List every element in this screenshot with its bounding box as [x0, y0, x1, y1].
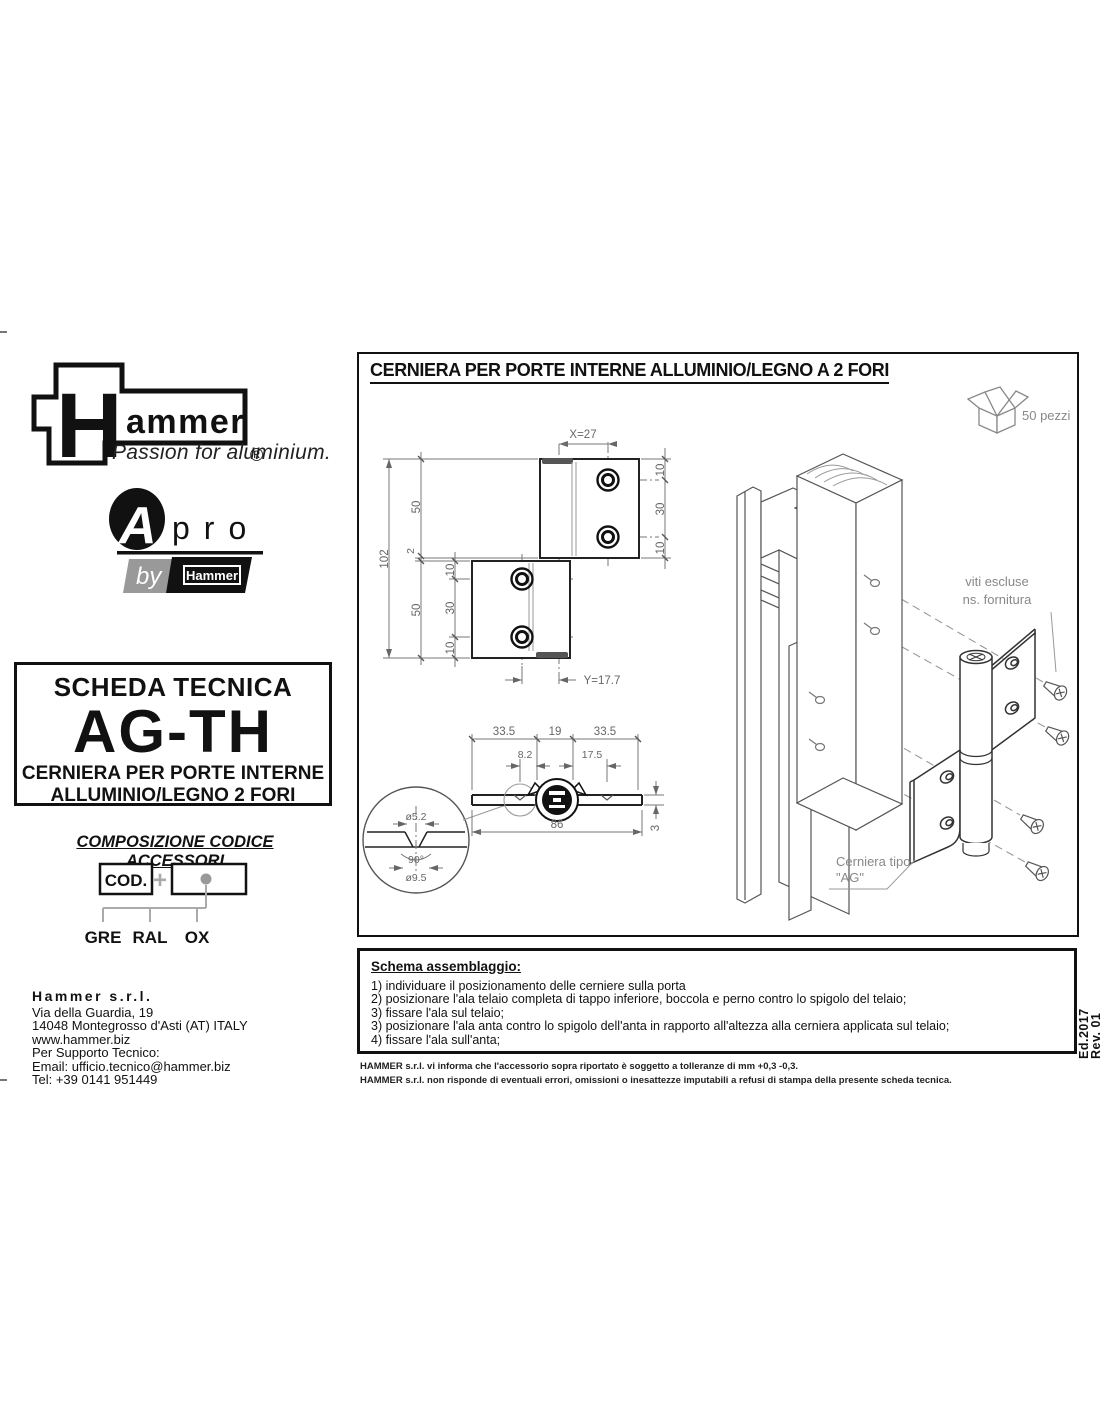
iso-view: viti escluse ns. fornitura Cerniera tipo… — [737, 454, 1071, 920]
dim-right-10a: 10 — [655, 464, 667, 477]
apro-pro: pro — [172, 510, 260, 546]
assembly-step: 1) individuare il posizionamento delle c… — [371, 980, 1074, 993]
screws-note-line1: viti escluse — [965, 574, 1029, 589]
company-street: Via della Guardia, 19 — [32, 1006, 248, 1020]
company-email: Email: ufficio.tecnico@hammer.biz — [32, 1060, 248, 1074]
dim-102: 102 — [379, 549, 391, 568]
screws-note-leader — [1051, 612, 1056, 672]
disclaimer-line2: HAMMER s.r.l. non risponde di eventuali … — [360, 1074, 952, 1088]
made-in-italy-badge — [528, 779, 586, 821]
dim-2-gap: 2 — [405, 548, 417, 554]
dim-50-lower: 50 — [411, 604, 423, 617]
company-address: Hammer s.r.l. Via della Guardia, 19 1404… — [32, 990, 248, 1087]
datasheet-page: H Hammer ammer ® Passion for aluminium. … — [0, 0, 1100, 1422]
assembly-step: 2) posizionare l'ala telaio completa di … — [371, 993, 1074, 1006]
product-code: AG-TH — [17, 703, 329, 760]
assembly-instructions-box: Schema assemblaggio: 1) individuare il p… — [357, 948, 1077, 1054]
assembly-step: 3) posizionare l'ala anta contro lo spig… — [371, 1020, 1074, 1033]
technical-drawings: 50 pezzi — [359, 354, 1077, 935]
dim-82: 8.2 — [518, 749, 533, 761]
detail-leader — [463, 805, 506, 820]
dim-86: 86 — [551, 819, 564, 831]
product-name-line1: CERNIERA PER PORTE INTERNE — [17, 763, 329, 785]
hinge-type-line1: Cerniera tipo — [836, 854, 910, 869]
finish-dot — [201, 874, 212, 885]
company-phone: Tel: +39 0141 951449 — [32, 1073, 248, 1087]
dim-hole-dia: ø5.2 — [405, 811, 426, 823]
revision-label: Rev. 01 — [1090, 983, 1100, 1059]
section-view: ø5.2 90° ø9.5 — [363, 726, 664, 893]
technical-drawing-box: CERNIERA PER PORTE INTERNE ALLUMINIO/LEG… — [357, 352, 1079, 937]
wood-door — [797, 454, 902, 830]
cod-label: COD. — [105, 871, 148, 890]
screws-note-line2: ns. fornitura — [963, 592, 1032, 607]
apro-hammer-word: Hammer — [186, 568, 238, 583]
assembly-title: Schema assemblaggio: — [371, 959, 1074, 974]
hinge-leaf-top — [540, 459, 639, 558]
finish-option-ox: OX — [185, 928, 210, 947]
code-composition-diagram: COD. + GRE RAL OX — [20, 858, 330, 958]
assembly-step: 4) fissare l'ala sull'anta; — [371, 1034, 1074, 1047]
assembly-step: 3) fissare l'ala sul telaio; — [371, 1007, 1074, 1020]
dim-175: 17.5 — [582, 749, 603, 761]
apro-by: by — [136, 563, 163, 590]
apro-logo: A pro by Hammer — [92, 481, 272, 609]
front-view: X=27 102 50 2 50 10 30 10 10 30 10 Y=17.… — [379, 429, 671, 687]
dim-x27: X=27 — [569, 429, 596, 441]
brand-tagline: Passion for aluminium. — [112, 441, 331, 465]
apro-a: A — [117, 497, 157, 555]
dim-3: 3 — [650, 825, 662, 831]
dim-left-10a: 10 — [445, 564, 457, 577]
company-name: Hammer s.r.l. — [32, 990, 248, 1004]
dim-left-10b: 10 — [445, 642, 457, 655]
carton-box-icon — [968, 387, 1028, 433]
company-website: www.hammer.biz — [32, 1033, 248, 1047]
plus-sign: + — [153, 867, 167, 894]
edition-revision: Ed.2017 Rev. 01 — [1078, 983, 1100, 1059]
company-support-label: Per Supporto Tecnico: — [32, 1046, 248, 1060]
package-qty-label: 50 pezzi — [1022, 408, 1071, 423]
dim-19: 19 — [549, 726, 562, 738]
crop-mark-bottom — [0, 1079, 7, 1081]
disclaimer-line1: HAMMER s.r.l. vi informa che l'accessori… — [360, 1060, 952, 1074]
dim-50-upper: 50 — [411, 501, 423, 514]
apro-underline — [117, 551, 263, 555]
finish-option-ral: RAL — [133, 928, 168, 947]
crop-mark-top — [0, 331, 7, 333]
dim-right-10b: 10 — [655, 542, 667, 555]
assembly-steps: 1) individuare il posizionamento delle c… — [371, 980, 1074, 1047]
hinge-leaf-door-3d — [910, 750, 960, 864]
company-city: 14048 Montegrosso d'Asti (AT) ITALY — [32, 1019, 248, 1033]
finish-option-gre: GRE — [85, 928, 122, 947]
hinge-type-line2: "AG" — [836, 870, 864, 885]
product-name-line2: ALLUMINIO/LEGNO 2 FORI — [17, 785, 329, 807]
dim-335-right: 33.5 — [594, 726, 616, 738]
countersink-detail: ø5.2 90° ø9.5 — [363, 787, 469, 893]
hinge-leaf-frame-3d — [989, 629, 1035, 752]
hammer-logo-ammer: ammer — [126, 403, 245, 441]
knuckle-cap-bottom — [536, 652, 568, 658]
hinge-cylinder — [960, 651, 992, 857]
dim-head-dia: ø9.5 — [405, 872, 426, 884]
dim-335-left: 33.5 — [493, 726, 515, 738]
dim-left-30: 30 — [445, 602, 457, 615]
dim-y177: Y=17.7 — [584, 675, 621, 687]
disclaimer: HAMMER s.r.l. vi informa che l'accessori… — [360, 1060, 952, 1087]
dim-angle: 90° — [408, 854, 424, 866]
dim-right-30: 30 — [655, 503, 667, 516]
knuckle-cap-top — [542, 458, 573, 464]
datasheet-title-box: SCHEDA TECNICA AG-TH CERNIERA PER PORTE … — [14, 662, 332, 806]
